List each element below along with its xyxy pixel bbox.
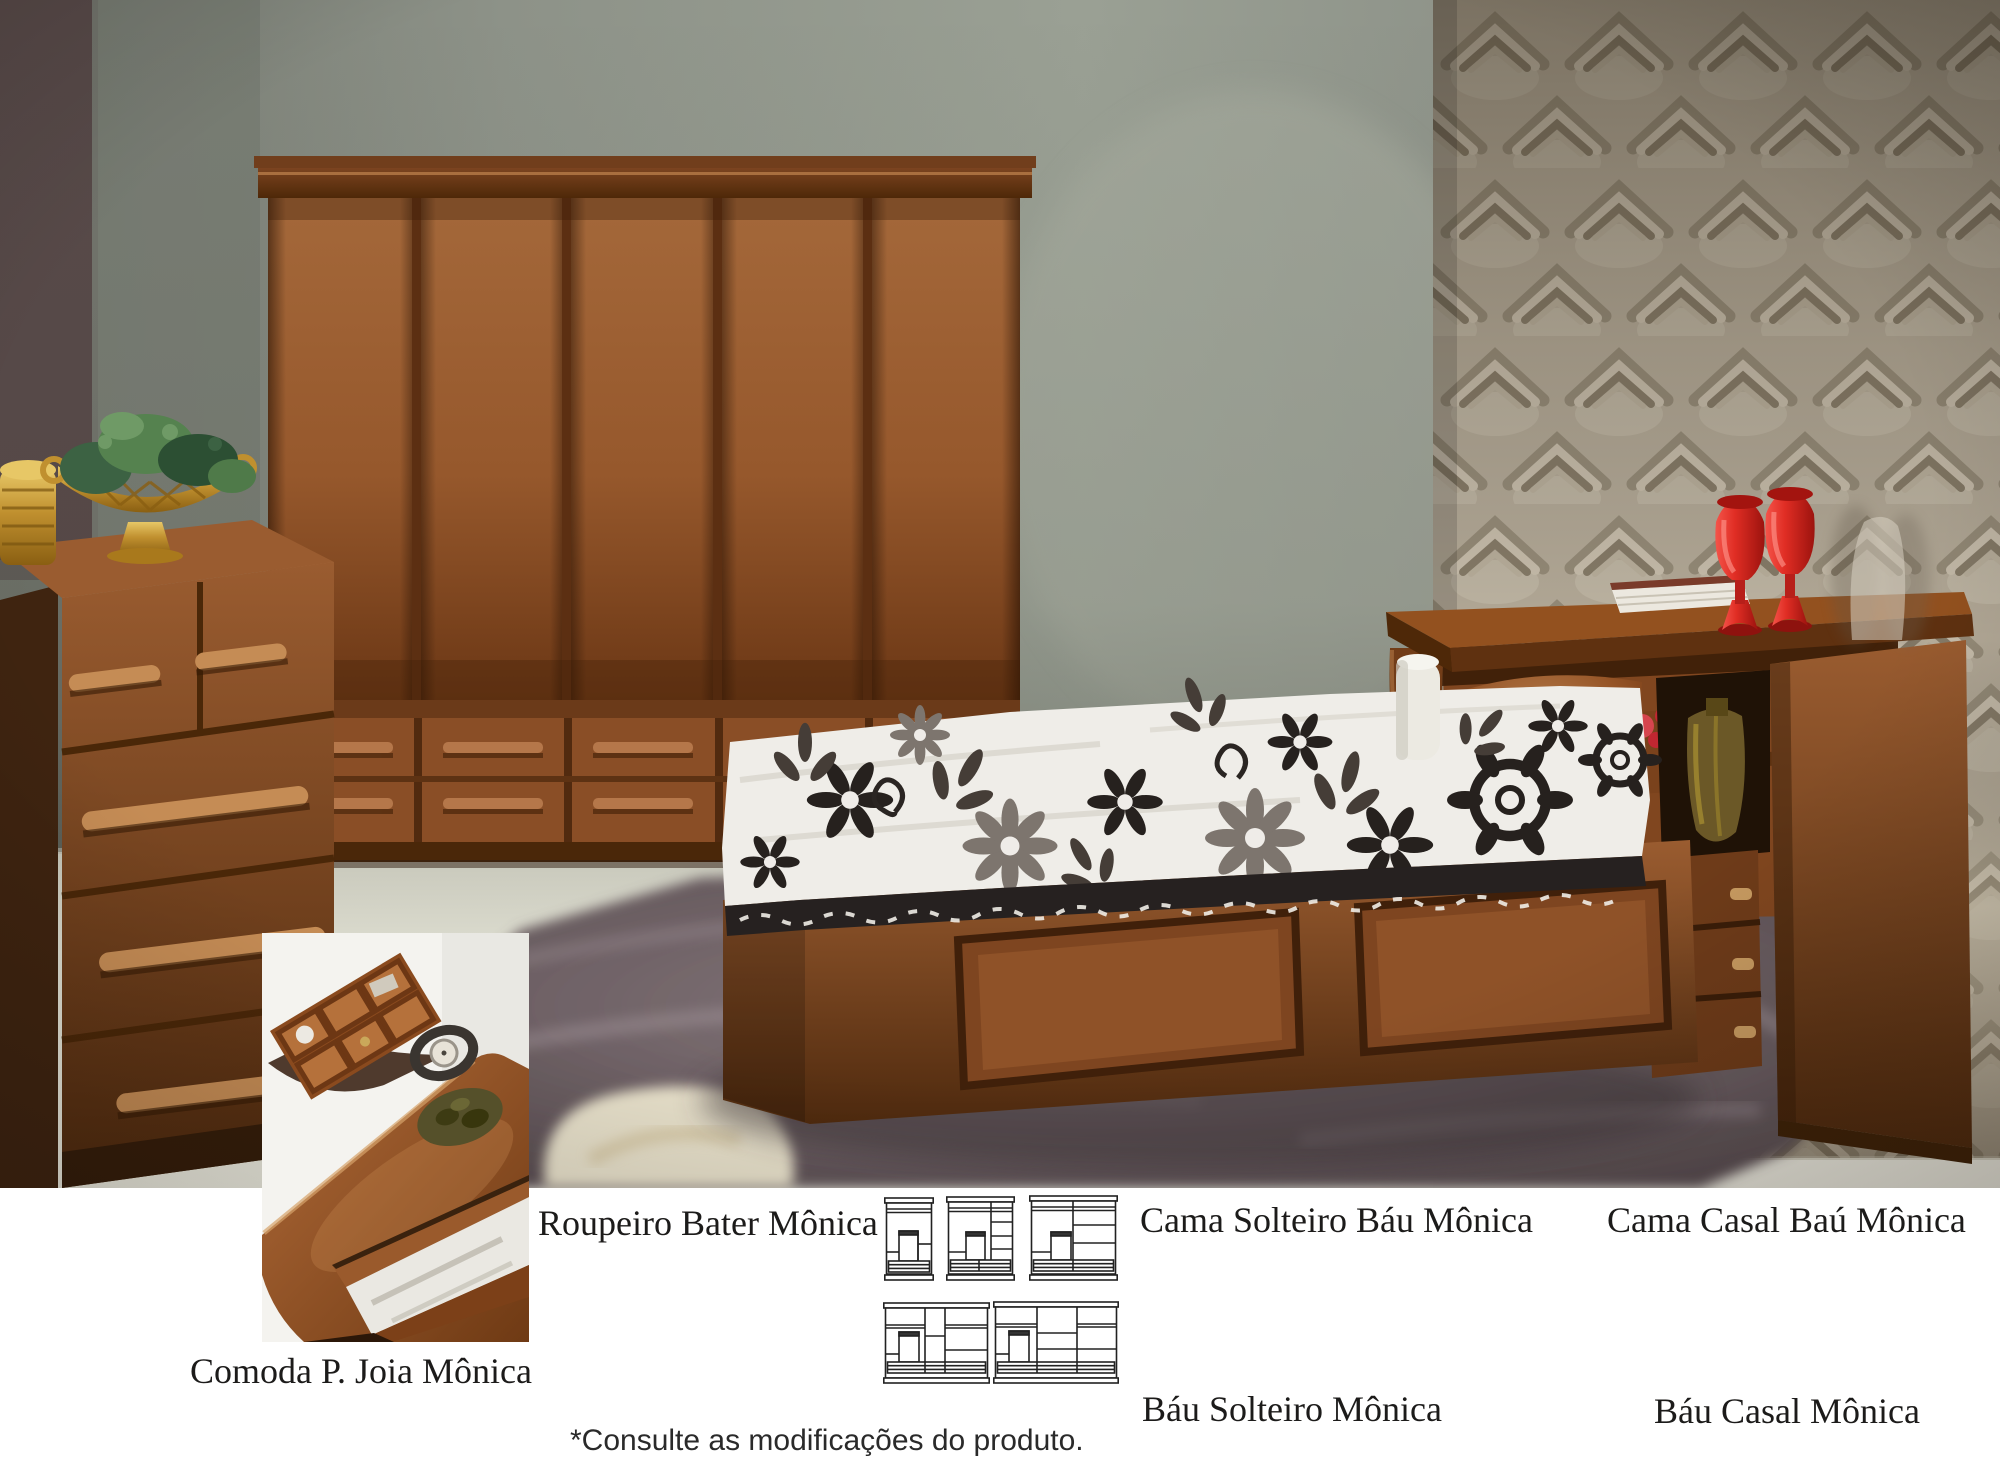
caption-bau-solteiro: Báu Solteiro Mônica (1142, 1389, 1442, 1430)
caption-cama-casal: Cama Casal Baú Mônica (1607, 1200, 1966, 1241)
wardrobe-front-schematic-1 (884, 1197, 934, 1283)
wardrobe-front-schematic-4 (883, 1302, 990, 1386)
jewelry-drawer-inset-photo (262, 933, 529, 1342)
caption-roupeiro: Roupeiro Bater Mônica (538, 1203, 878, 1244)
caption-bau-casal: Báu Casal Mônica (1654, 1391, 1920, 1432)
caption-cama-solteiro: Cama Solteiro Báu Mônica (1140, 1200, 1533, 1241)
catalog-page: Roupeiro Bater Mônica Cama Solteiro Báu … (0, 0, 2000, 1475)
wardrobe-front-schematic-2 (946, 1196, 1015, 1283)
product-note: *Consulte as modificações do produto. (570, 1424, 1084, 1457)
wardrobe-front-schematic-3 (1029, 1195, 1118, 1283)
wardrobe-front-schematic-5 (993, 1301, 1119, 1386)
caption-comoda: Comoda P. Joia Mônica (190, 1351, 532, 1392)
